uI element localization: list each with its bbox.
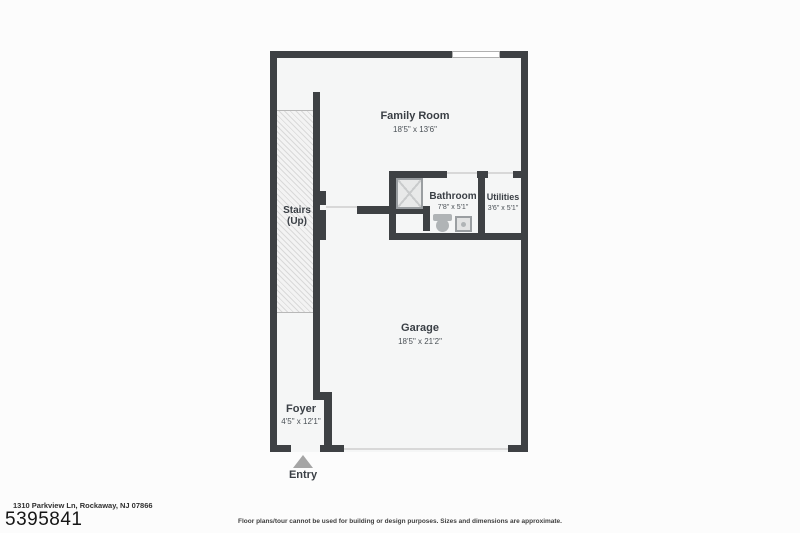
wall-bottom-left (270, 445, 291, 452)
wall-door-jamb-upper (320, 191, 326, 205)
room-dims: 18'5" x 13'6" (380, 125, 449, 134)
toilet-icon (433, 214, 452, 233)
room-name: Foyer (281, 403, 320, 415)
wall-foyer-right (324, 392, 332, 452)
room-name: Entry (289, 469, 317, 481)
room-label-foyer: Foyer 4'5" x 12'1" (281, 403, 320, 426)
room-label-garage: Garage 18'5" x 21'2" (398, 322, 442, 346)
entry-arrow-icon (293, 455, 313, 468)
disclaimer-text: Floor plans/tour cannot be used for buil… (238, 518, 562, 525)
wall-bathroom-top (389, 171, 447, 178)
room-label-utilities: Utilities 3'6" x 5'1" (487, 193, 520, 212)
window-opening (452, 51, 500, 58)
room-dims: 4'5" x 12'1" (281, 417, 320, 426)
wall-utilities-top (513, 171, 528, 178)
wall-door-jamb-lower (320, 210, 326, 240)
room-dims: 3'6" x 5'1" (487, 205, 520, 212)
room-sublabel: (Up) (283, 216, 311, 228)
room-name: Utilities (487, 193, 520, 203)
wall-bottom-right (508, 445, 528, 452)
interior-door-line (326, 206, 357, 208)
wall-stairs-right (313, 92, 320, 393)
room-label-bathroom: Bathroom 7'8" x 5'1" (429, 191, 476, 211)
room-name: Bathroom (429, 191, 476, 202)
bathroom-door-line (447, 172, 477, 174)
room-name: Family Room (380, 110, 449, 122)
room-dims: 7'8" x 5'1" (429, 204, 476, 211)
floor-plan-page: Family Room 18'5" x 13'6" Stairs (Up) Ba… (0, 0, 800, 533)
wall-bathroom-bottom (389, 233, 528, 240)
wall-bathroom-utilities-divider (478, 171, 485, 240)
shower-icon (396, 178, 423, 209)
wall-bathroom-west (389, 171, 396, 233)
room-name: Garage (398, 322, 442, 334)
room-name: Stairs (283, 205, 311, 216)
mls-number: 5395841 (5, 509, 82, 531)
wall-left (270, 51, 277, 452)
entry-label: Entry (289, 469, 317, 481)
wall-shower-stub (423, 214, 430, 231)
room-label-family-room: Family Room 18'5" x 13'6" (380, 110, 449, 134)
room-label-stairs: Stairs (Up) (283, 205, 311, 228)
utilities-door-line (488, 172, 513, 174)
room-dims: 18'5" x 21'2" (398, 337, 442, 346)
garage-door-line (344, 448, 508, 450)
wall-right (521, 51, 528, 452)
sink-icon (455, 216, 472, 232)
